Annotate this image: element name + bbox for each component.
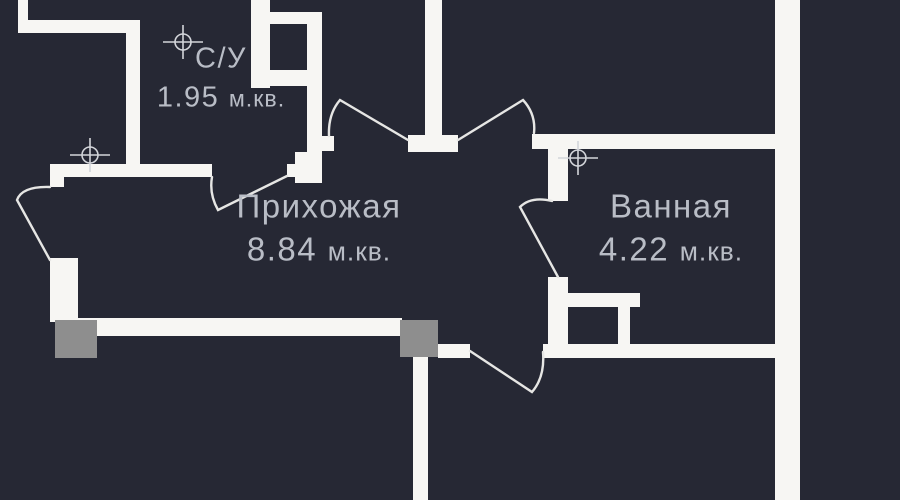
area-value: 1.95	[157, 82, 219, 114]
door-swing	[470, 351, 543, 392]
door-swing	[329, 100, 408, 140]
room-label-bathroom: Ванная 4.22 м.кв.	[599, 188, 743, 269]
room-name: Ванная	[599, 188, 743, 226]
door-swing	[520, 199, 558, 277]
wall	[126, 20, 140, 177]
room-area: 4.22 м.кв.	[599, 231, 743, 269]
wall	[532, 134, 775, 149]
area-unit: м.кв.	[328, 237, 391, 267]
area-value: 4.22	[599, 231, 669, 268]
door-swing	[458, 100, 534, 140]
floor-plan-drawing	[0, 0, 900, 500]
door-jamb	[318, 136, 334, 151]
wall	[408, 135, 458, 152]
axis-markers-layer	[70, 25, 598, 175]
floor-plan: С/У 1.95 м.кв. Прихожая 8.84 м.кв. Ванна…	[0, 0, 900, 500]
duct-wall	[568, 293, 640, 307]
area-unit: м.кв.	[229, 86, 285, 112]
wall	[425, 0, 442, 140]
room-label-su: С/У 1.95 м.кв.	[157, 43, 285, 116]
window-wall	[270, 12, 322, 24]
room-name: Прихожая	[237, 188, 402, 226]
wall	[50, 175, 64, 187]
wall	[548, 149, 568, 201]
room-area: 8.84 м.кв.	[237, 231, 402, 269]
room-label-hallway: Прихожая 8.84 м.кв.	[237, 188, 402, 269]
wall	[50, 258, 78, 322]
wall	[78, 318, 402, 336]
wall	[543, 344, 775, 358]
door-swing	[17, 187, 50, 260]
area-unit: м.кв.	[680, 237, 743, 267]
room-area: 1.95 м.кв.	[157, 82, 285, 115]
wall	[18, 20, 140, 33]
wall	[50, 164, 212, 177]
column	[400, 320, 438, 357]
area-value: 8.84	[247, 231, 317, 268]
duct-wall	[618, 307, 630, 347]
room-name: С/У	[157, 43, 285, 76]
column	[55, 320, 97, 358]
wall	[438, 344, 470, 358]
wall-outer-right	[775, 0, 800, 500]
wall	[413, 357, 428, 500]
